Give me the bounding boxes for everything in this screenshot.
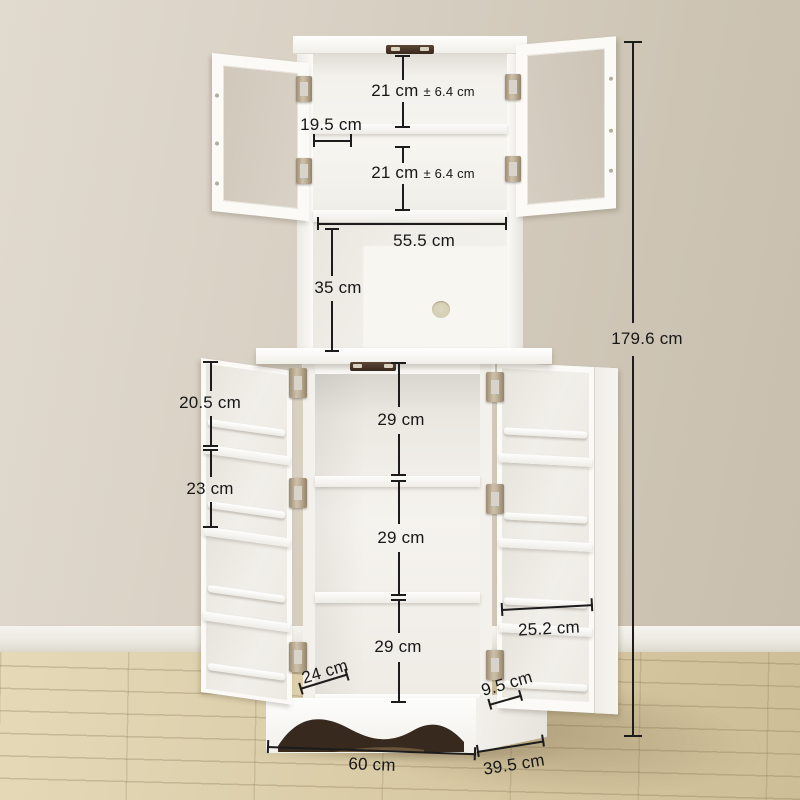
hinge <box>289 478 307 508</box>
dim-line <box>398 552 400 595</box>
dim-label-upper-shelf-b: 21 cm ± 6.4 cm <box>371 163 475 183</box>
door-rack-compartment <box>502 462 589 543</box>
dim-line <box>331 229 333 276</box>
dim-line <box>267 746 476 755</box>
dim-tick <box>391 701 406 703</box>
hutch-bottom-board <box>313 210 507 222</box>
dim-tick <box>203 526 218 528</box>
dim-tick <box>203 361 218 363</box>
glass-pane <box>223 65 298 209</box>
dim-tolerance: ± 6.4 cm <box>423 84 474 99</box>
dim-line <box>402 184 404 209</box>
dim-value: 35 cm <box>314 278 361 297</box>
dim-tick <box>624 735 642 737</box>
dim-line <box>398 662 400 702</box>
hinge <box>486 484 504 514</box>
hinge-slot <box>300 164 308 178</box>
dim-tick <box>391 594 406 596</box>
product-dimension-image: 21 cm ± 6.4 cm 19.5 cm 21 cm ± 6.4 cm 55… <box>0 0 800 800</box>
screw <box>609 129 613 133</box>
dim-line <box>318 223 506 225</box>
hinge-slot <box>294 486 302 500</box>
dim-tick <box>350 134 352 147</box>
door-edge-face <box>594 367 618 714</box>
glass-pane <box>527 48 605 205</box>
hinge <box>486 372 504 402</box>
lower-door-right <box>497 362 617 714</box>
dim-line <box>402 102 404 126</box>
dim-tick <box>391 362 406 364</box>
dim-tick <box>267 740 269 753</box>
dim-value: 25.2 cm <box>518 617 581 639</box>
dim-label-hutch-inner-width: 55.5 cm <box>393 231 455 251</box>
dim-value: 19.5 cm <box>300 115 362 134</box>
dim-tick <box>395 55 410 57</box>
hinge <box>296 158 312 184</box>
dim-value: 29 cm <box>377 410 424 429</box>
dim-tick <box>624 41 642 43</box>
door-rack-compartment <box>206 536 287 623</box>
dim-value: 29 cm <box>374 637 421 656</box>
hinge-slot <box>491 380 499 394</box>
door-rack-compartment <box>502 368 589 458</box>
dim-line <box>501 604 593 611</box>
dim-line <box>210 416 212 445</box>
screw <box>609 169 613 173</box>
dim-value: 29 cm <box>377 528 424 547</box>
dim-label-lower-shelf-a: 29 cm <box>377 410 424 430</box>
dim-label-door-rack-width: 25.2 cm <box>518 617 581 640</box>
dim-label-door-rack-gap-b: 23 cm <box>186 479 233 499</box>
dim-value: 20.5 cm <box>179 393 241 412</box>
magnetic-catch-base <box>350 362 396 371</box>
glass-door-left <box>212 53 309 221</box>
hinge-slot <box>294 650 302 664</box>
dim-line <box>398 600 400 633</box>
dim-line <box>402 147 404 163</box>
dim-line <box>632 356 634 735</box>
dim-tick <box>313 134 315 147</box>
open-shelf-highlight <box>363 246 507 348</box>
dim-value: 179.6 cm <box>611 329 683 348</box>
hinge-slot <box>509 162 517 176</box>
door-rack-compartment <box>502 547 589 628</box>
dim-tick <box>391 599 406 601</box>
dim-line <box>398 434 400 475</box>
hinge-slot <box>491 492 499 506</box>
dim-value: 23 cm <box>186 479 233 498</box>
dim-line <box>398 481 400 524</box>
dim-tick <box>395 209 410 211</box>
hinge-slot <box>491 658 499 672</box>
magnetic-catch-top <box>386 45 434 54</box>
screw <box>215 181 219 185</box>
cable-hole <box>432 301 450 318</box>
dim-line <box>632 42 634 323</box>
dim-tick <box>325 350 339 352</box>
hinge <box>289 368 307 398</box>
hinge <box>505 74 521 100</box>
catch-clip <box>384 364 393 368</box>
dim-label-lower-shelf-b: 29 cm <box>377 528 424 548</box>
hinge-slot <box>294 376 302 390</box>
hinge-slot <box>300 82 308 96</box>
dim-value: 21 cm <box>371 163 418 182</box>
dim-tick <box>325 228 339 230</box>
screw <box>609 77 613 81</box>
dim-line <box>331 301 333 351</box>
screw <box>215 141 219 145</box>
hinge <box>296 76 312 102</box>
dim-label-open-shelf-height: 35 cm <box>314 278 361 298</box>
dim-label-overall-height: 179.6 cm <box>611 329 683 349</box>
catch-clip <box>353 364 362 368</box>
dim-line <box>210 450 212 477</box>
dim-value: 21 cm <box>371 81 418 100</box>
screw <box>215 93 219 97</box>
dim-tick <box>391 480 406 482</box>
catch-clip <box>420 47 429 51</box>
dim-tick <box>501 603 504 616</box>
hutch-interior <box>313 53 507 222</box>
dim-value: 55.5 cm <box>393 231 455 250</box>
dim-tick <box>391 474 406 476</box>
dim-tick <box>505 217 507 230</box>
dim-tick <box>395 146 410 148</box>
glass-door-right <box>516 36 616 217</box>
dim-tick <box>203 449 218 451</box>
dim-label-overall-width: 60 cm <box>348 754 396 776</box>
dim-line <box>402 56 404 80</box>
hinge-slot <box>509 80 517 94</box>
dim-label-upper-shelf-a: 21 cm ± 6.4 cm <box>371 81 475 101</box>
dim-label-lower-shelf-c: 29 cm <box>374 637 421 657</box>
catch-clip <box>391 47 400 51</box>
dim-label-door-rack-gap-a: 20.5 cm <box>179 393 241 413</box>
dim-tick <box>395 126 410 128</box>
dim-line <box>314 140 351 142</box>
dim-tick <box>317 217 319 230</box>
dim-label-upper-door-width: 19.5 cm <box>300 115 362 135</box>
dim-line <box>398 363 400 407</box>
dim-line <box>210 502 212 527</box>
hinge <box>505 156 521 182</box>
dim-tick <box>203 445 218 447</box>
dim-line <box>210 362 212 391</box>
dim-value: 60 cm <box>348 754 396 775</box>
dim-tolerance: ± 6.4 cm <box>423 166 474 181</box>
door-rack-compartment <box>206 621 287 700</box>
